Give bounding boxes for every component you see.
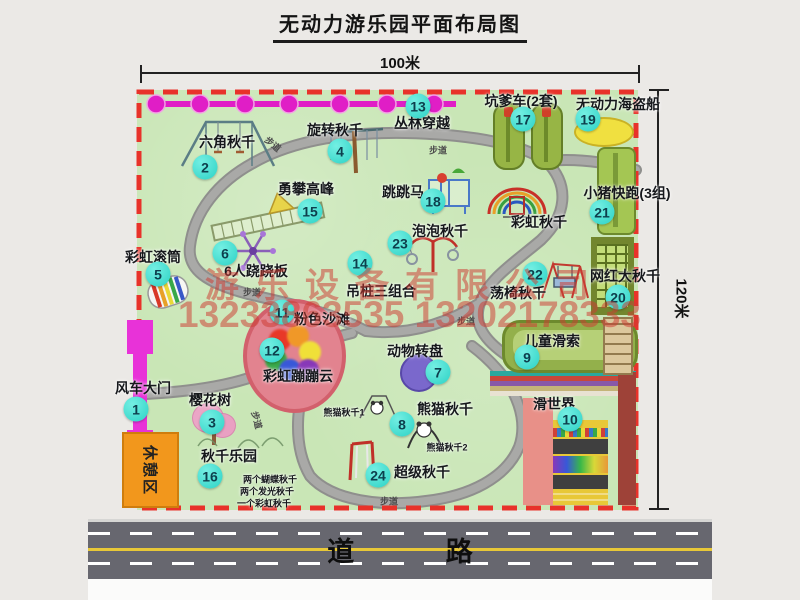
badge-7: 7 <box>426 360 451 385</box>
badge-8: 8 <box>390 412 415 437</box>
badge-17: 17 <box>511 107 536 132</box>
label-hanging-post-combo: 吊桩三组合 <box>346 281 416 301</box>
badge-23: 23 <box>388 231 413 256</box>
badge-6: 6 <box>213 241 238 266</box>
label-animal-carousel: 动物转盘 <box>387 341 443 361</box>
badge-5: 5 <box>146 262 171 287</box>
badge-13: 13 <box>406 94 431 119</box>
label-panda-swing-2: 熊猫秋千2 <box>426 441 467 454</box>
badge-4: 4 <box>328 139 353 164</box>
badge-2: 2 <box>193 155 218 180</box>
road: 道 路 <box>88 519 712 582</box>
badge-12: 12 <box>260 338 285 363</box>
label-rainbow-swing: 彩虹秋千 <box>511 212 567 232</box>
label-seesaw-6p: 6人跷跷板 <box>224 261 288 281</box>
chair-swing-icon <box>542 264 588 298</box>
swing-park-detail-3: 一个彩虹秋千 <box>237 497 291 510</box>
badge-9: 9 <box>515 345 540 370</box>
label-rotating-swing: 旋转秋千 <box>307 120 363 140</box>
badge-10: 10 <box>558 407 583 432</box>
badge-24: 24 <box>366 463 391 488</box>
badge-15: 15 <box>298 199 323 224</box>
label-hexagon-swing: 六角秋千 <box>199 132 255 152</box>
label-super-swing: 超级秋千 <box>394 462 450 482</box>
badge-18: 18 <box>421 189 446 214</box>
badge-19: 19 <box>576 107 601 132</box>
badge-1: 1 <box>124 397 149 422</box>
panda-swing-icon <box>360 396 396 418</box>
label-panda-swing-1: 熊猫秋千1 <box>323 406 364 419</box>
label-climbing-peak: 勇攀高峰 <box>278 179 334 199</box>
bubble-swing-icon <box>407 238 458 272</box>
label-rainbow-cloud: 彩虹蹦蹦云 <box>263 366 333 386</box>
badge-16: 16 <box>198 464 223 489</box>
label-cherry-tree: 樱花树 <box>189 390 231 410</box>
road-label: 道 路 <box>285 529 515 568</box>
badge-11: 11 <box>270 300 295 325</box>
badge-22: 22 <box>523 262 548 287</box>
label-pink-beach: 粉色沙滩 <box>294 309 350 329</box>
label-bubble-swing: 泡泡秋千 <box>412 221 468 241</box>
badge-21: 21 <box>590 200 615 225</box>
road-shoulder <box>88 579 712 600</box>
label-windmill-gate: 风车大门 <box>115 378 171 398</box>
label-panda-swing: 熊猫秋千 <box>417 399 473 419</box>
badge-20: 20 <box>606 285 631 310</box>
label-big-swing: 网红大秋千 <box>590 266 660 286</box>
park-plan-canvas: 无动力游乐园平面布局图 100米 120米 <box>0 0 800 600</box>
badge-3: 3 <box>200 410 225 435</box>
label-jumping-horse: 跳跳马 <box>382 182 424 202</box>
badge-14: 14 <box>348 251 373 276</box>
